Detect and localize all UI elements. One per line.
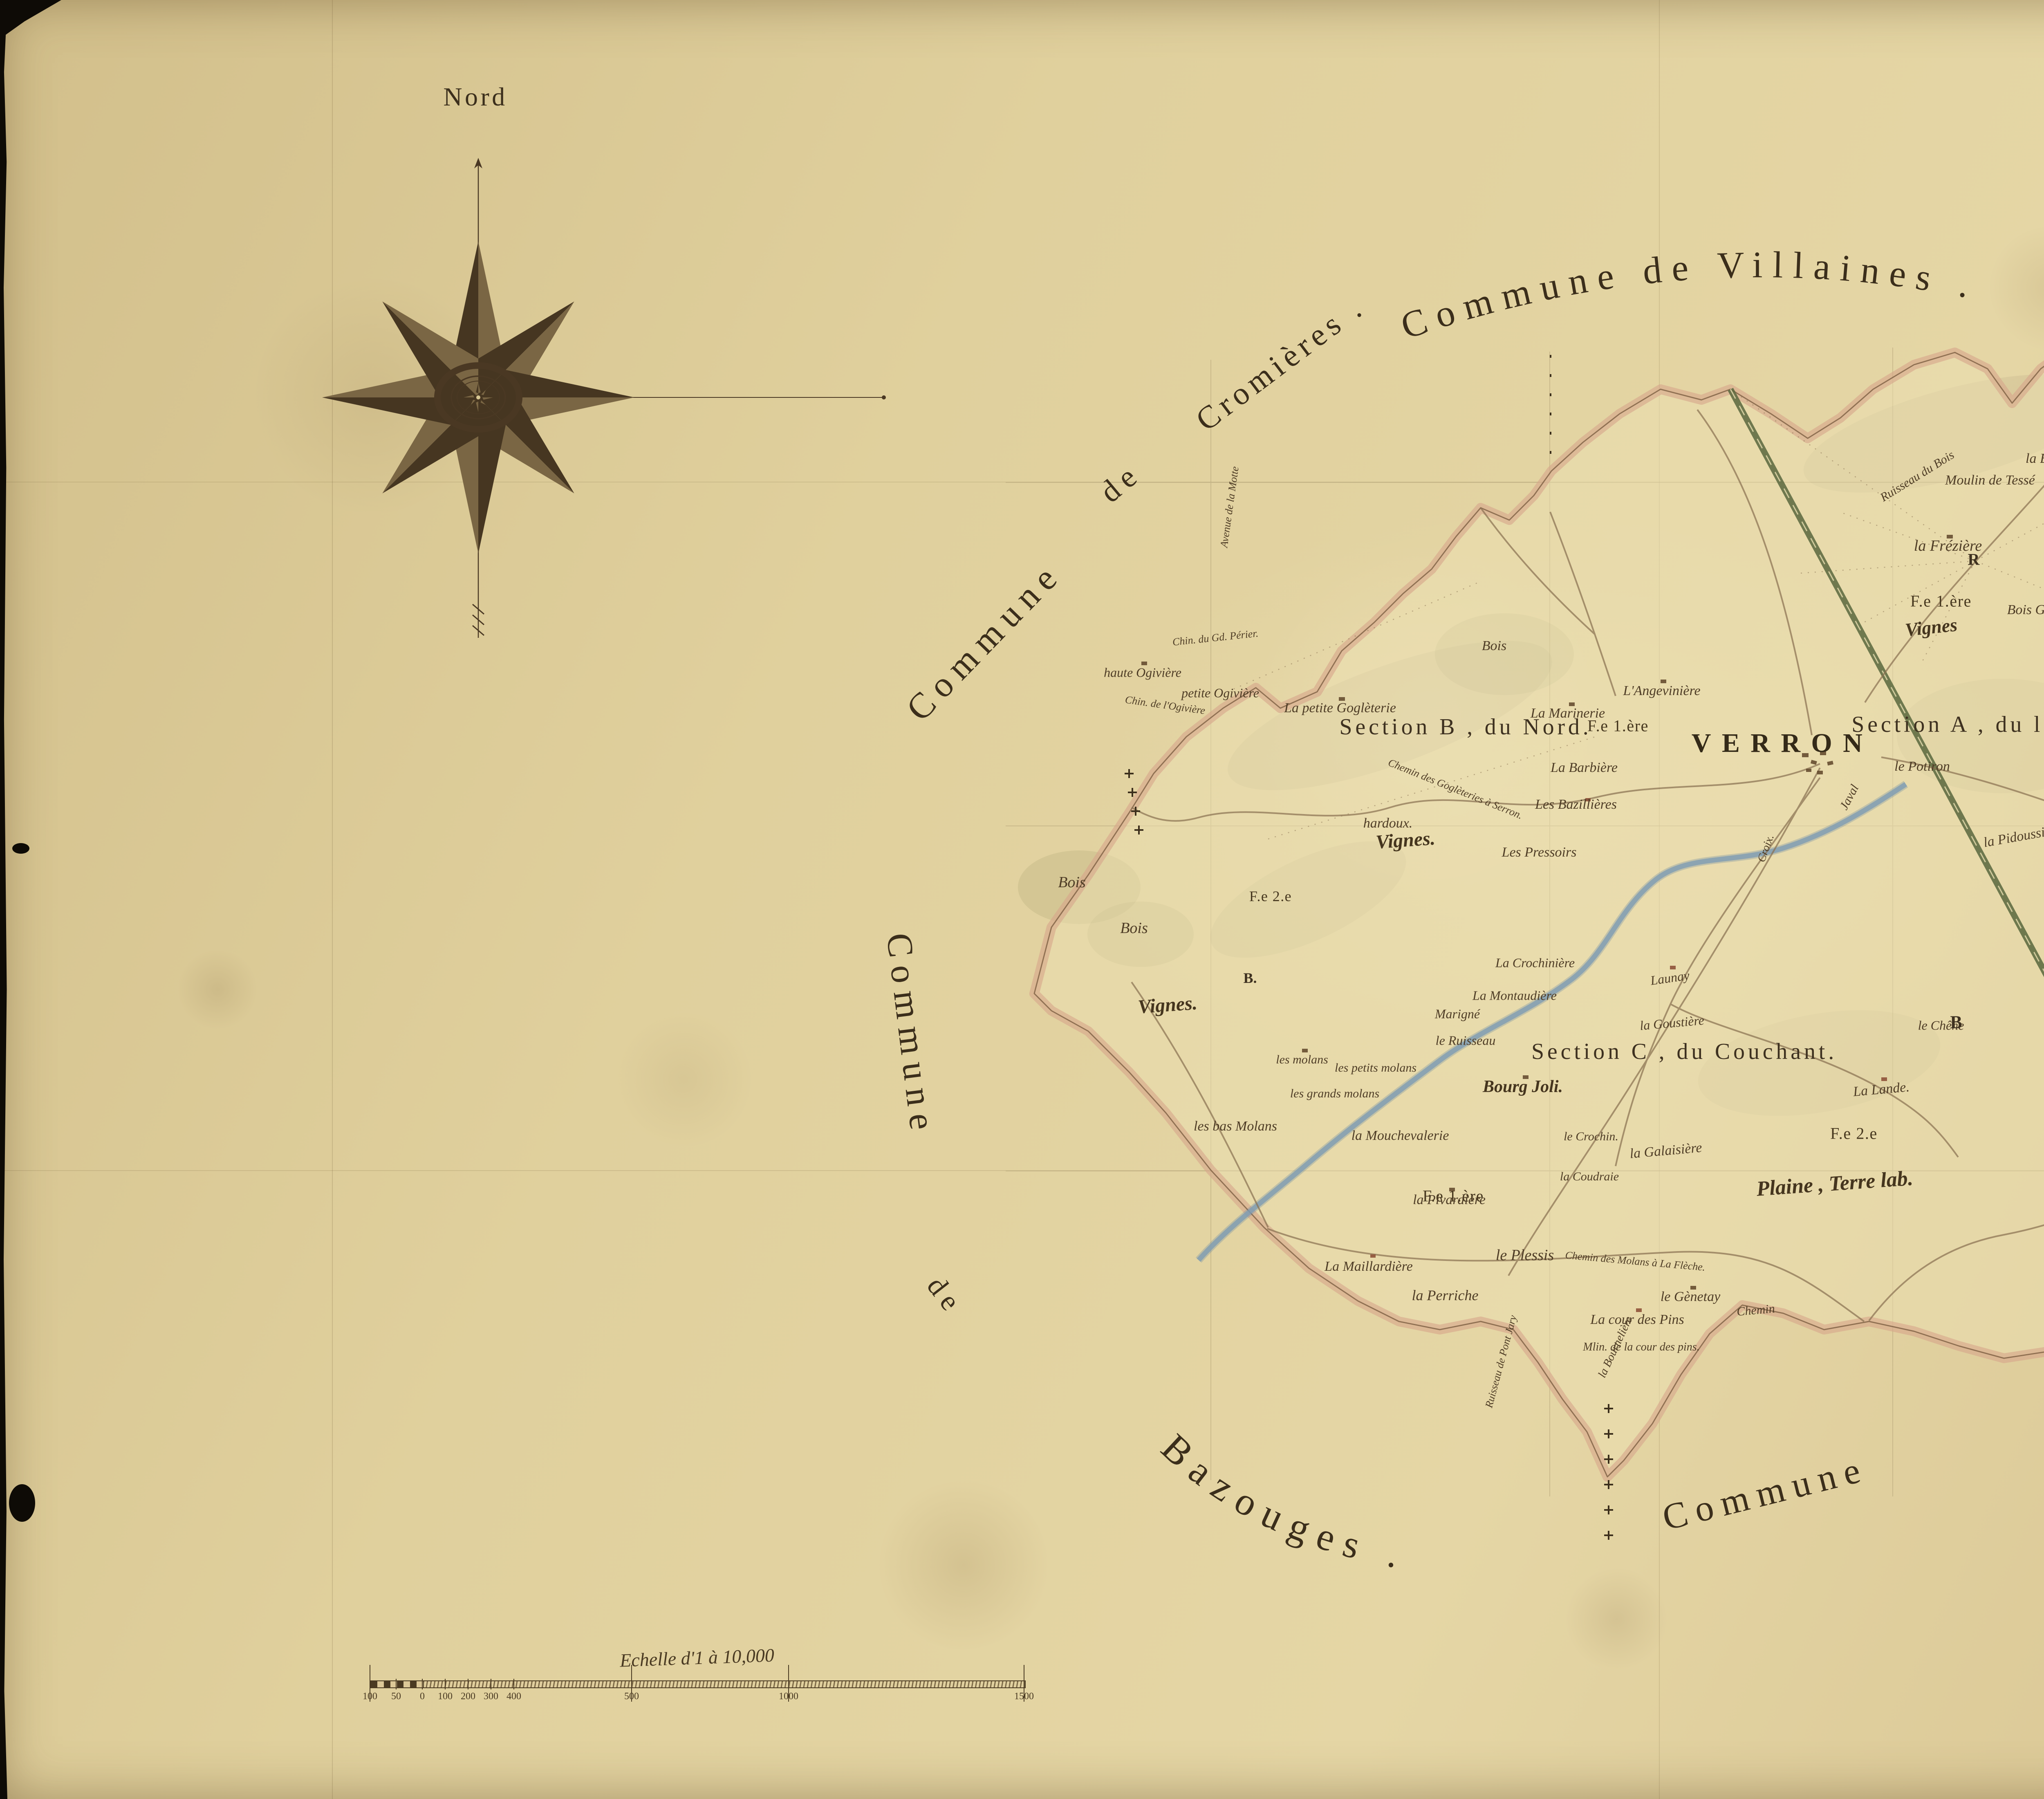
map-label: le Ruisseau	[1436, 1033, 1496, 1048]
scale-tick-label: 0	[420, 1691, 425, 1702]
map-label: Bois	[1482, 638, 1506, 654]
map-label: La cour des Pins	[1590, 1312, 1684, 1328]
map-label: La petite Goglèterie	[1284, 700, 1396, 716]
map-label: R	[1968, 550, 1980, 569]
neighbor-commune-bazouges: Bazouges .	[1153, 1425, 1412, 1578]
map-label: La Barbière	[1551, 760, 1618, 776]
map-label: hardoux.	[1363, 816, 1413, 831]
map-label: la Perriche	[1412, 1287, 1479, 1304]
map-label: Section C , du Couchant.	[1531, 1039, 1837, 1065]
map-label: VERRON	[1692, 728, 1873, 759]
compass-rose	[322, 158, 886, 638]
map-label: la Besnerie	[2026, 451, 2044, 467]
map-label: Bois Gaillard	[2007, 602, 2044, 618]
svg-text:Bazouges .: Bazouges .	[1153, 1425, 1412, 1578]
scale-tick-label: 100	[363, 1691, 377, 1702]
map-label: Marigné	[1435, 1007, 1480, 1022]
map-label: la Pivardière	[1413, 1192, 1486, 1208]
map-sheet: Commune de Villaines . Bazouges . Nord C…	[0, 0, 2044, 1799]
map-label: Vignes.	[1137, 991, 1198, 1018]
scale-tick-label: 400	[507, 1691, 521, 1702]
scale-tick-label: 50	[391, 1691, 401, 1702]
map-label: haute Ogivière	[1104, 665, 1181, 680]
map-label: Moulin de Tessé	[1945, 473, 2035, 488]
map-label: L'Angevinière	[1623, 683, 1700, 699]
scale-tick-label: 200	[461, 1691, 475, 1702]
map-linework: Commune de Villaines . Bazouges .	[0, 0, 2044, 1799]
map-label: La Montaudière	[1472, 988, 1557, 1003]
map-label: Mlin. de la cour des pins.	[1583, 1341, 1699, 1354]
map-label: le Potiron	[1894, 759, 1950, 774]
map-label: La Marinerie	[1531, 706, 1605, 721]
map-label: Bourg Joli.	[1483, 1077, 1563, 1097]
map-label: les petits molans	[1335, 1061, 1416, 1075]
scale-tick-label: 300	[484, 1691, 498, 1702]
map-label: F.e 2.e	[1830, 1124, 1878, 1143]
map-label: le Gènetay	[1661, 1289, 1720, 1305]
map-label: La Maillardière	[1325, 1259, 1413, 1274]
map-label: petite Ogivière	[1181, 686, 1259, 701]
scale-bar-subdivision	[370, 1680, 424, 1688]
map-label: Bois	[1058, 873, 1086, 891]
map-label: Les Bazillières	[1535, 797, 1617, 812]
map-label: La Crochinière	[1495, 956, 1575, 971]
map-label: les molans	[1276, 1053, 1328, 1067]
map-label: la Coudraie	[1560, 1170, 1619, 1184]
map-label: Les Pressoirs	[1502, 845, 1577, 860]
map-label: les grands molans	[1290, 1087, 1379, 1101]
scale-tick-label: 1000	[779, 1691, 798, 1702]
map-label: B.	[1243, 969, 1257, 987]
commune-boundary	[1034, 351, 2044, 1477]
map-label: Bois	[1120, 919, 1148, 937]
map-label: F.e 1.ère	[1910, 592, 1972, 611]
map-label: le Crochin.	[1564, 1130, 1618, 1144]
scale-tick-label: 500	[624, 1691, 639, 1702]
map-label: F.e 2.e	[1249, 888, 1292, 905]
map-label: la Mouchevalerie	[1351, 1128, 1449, 1144]
map-label: Section A , du levant.	[1851, 711, 2044, 738]
scale-bar: Echelle d'1 à 10,000 1005001002003004005…	[370, 1673, 1024, 1706]
svg-text:Commune de Villaines .: Commune de Villaines .	[1396, 244, 1983, 347]
neighbor-commune-top: Commune de Villaines .	[1396, 244, 1983, 347]
map-label: les bas Molans	[1194, 1119, 1277, 1134]
map-label: le Plessis	[1496, 1246, 1554, 1264]
scale-tick-label: 1500	[1014, 1691, 1034, 1702]
scale-tick-label: 100	[438, 1691, 453, 1702]
map-label: B	[1950, 1012, 1962, 1033]
north-label: Nord	[443, 82, 507, 112]
